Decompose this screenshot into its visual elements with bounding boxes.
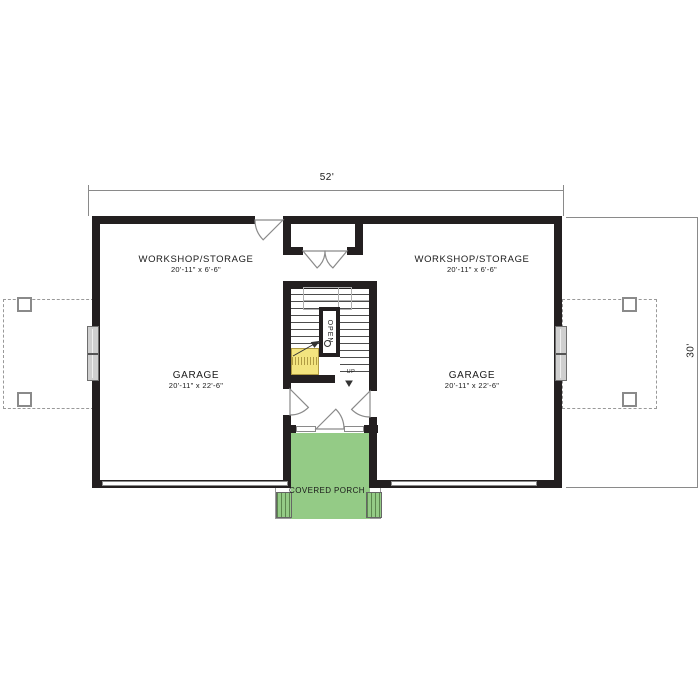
room-size: 20'-11" x 22'-6" xyxy=(116,381,276,390)
window-left xyxy=(87,326,99,381)
window-right xyxy=(555,326,567,381)
garage-door-left xyxy=(102,481,288,486)
stair-tread xyxy=(291,315,319,316)
stair-tread xyxy=(340,343,369,344)
stair-tread xyxy=(291,336,319,337)
room-name: WORKSHOP/STORAGE xyxy=(116,254,276,265)
room-label-workshop-left: WORKSHOP/STORAGE 20'-11" x 6'-6" xyxy=(116,254,276,274)
room-name: GARAGE xyxy=(392,370,552,381)
room-size: 20'-11" x 6'-6" xyxy=(116,265,276,274)
vestibule-right-door-opening xyxy=(369,391,377,417)
width-dimension-tick-right xyxy=(563,185,564,216)
stair-landing xyxy=(291,348,319,375)
floor-plan-canvas: 52' 30' xyxy=(0,0,700,700)
right-side-pad-outline xyxy=(562,299,657,409)
porch-flank-wall-left xyxy=(283,433,291,488)
stair-tread xyxy=(340,315,369,316)
width-dimension-line xyxy=(88,190,564,191)
room-label-garage-right: GARAGE 20'-11" x 22'-6" xyxy=(392,370,552,390)
entry-sidelight-right xyxy=(344,426,364,432)
right-pad-post-top xyxy=(622,297,637,312)
stair-tread xyxy=(340,350,369,351)
stair-tread xyxy=(340,322,369,323)
stair-tread xyxy=(291,343,319,344)
porch-post-right xyxy=(366,492,382,518)
stair-tread xyxy=(291,322,319,323)
stair-tread xyxy=(340,336,369,337)
porch-flank-wall-right xyxy=(369,433,377,488)
stair-tread xyxy=(340,364,369,365)
porch-post-left xyxy=(276,492,292,518)
width-dimension-label: 52' xyxy=(307,172,347,183)
alcove-wall-bottom-left xyxy=(283,247,303,255)
stair-tread xyxy=(340,329,369,330)
room-size: 20'-11" x 6'-6" xyxy=(392,265,552,274)
vestibule-bottom-wall-left xyxy=(283,425,296,433)
left-pad-post-bottom xyxy=(17,392,32,407)
height-dimension-ext-top xyxy=(566,217,698,218)
alcove-wall-bottom-right xyxy=(347,247,363,255)
room-label-workshop-right: WORKSHOP/STORAGE 20'-11" x 6'-6" xyxy=(392,254,552,274)
height-dimension-label: 30' xyxy=(686,330,697,372)
stair-bottom-wall xyxy=(283,375,335,383)
covered-porch-area xyxy=(291,433,370,519)
stair-up-label: UP xyxy=(344,369,358,375)
stair-tread xyxy=(340,357,369,358)
room-label-covered-porch: COVERED PORCH xyxy=(277,486,377,495)
top-door-opening xyxy=(255,216,283,225)
right-pad-post-bottom xyxy=(622,392,637,407)
upper-level-line xyxy=(303,300,369,301)
room-size: 20'-11" x 22'-6" xyxy=(392,381,552,390)
room-name: GARAGE xyxy=(116,370,276,381)
vestibule-left-door-opening xyxy=(283,389,291,415)
left-pad-post-top xyxy=(17,297,32,312)
height-dimension-line xyxy=(697,217,698,488)
room-label-garage-left: GARAGE 20'-11" x 22'-6" xyxy=(116,370,276,390)
room-name: WORKSHOP/STORAGE xyxy=(392,254,552,265)
stair-newel-post xyxy=(324,340,331,347)
stair-tread xyxy=(291,329,319,330)
width-dimension-tick-left xyxy=(88,185,89,216)
vestibule-bottom-wall-right xyxy=(364,425,378,433)
entry-sidelight-left xyxy=(296,426,316,432)
height-dimension-ext-bottom xyxy=(566,487,698,488)
garage-door-right xyxy=(391,481,537,486)
stair-open-rail: OPEN xyxy=(319,307,340,357)
